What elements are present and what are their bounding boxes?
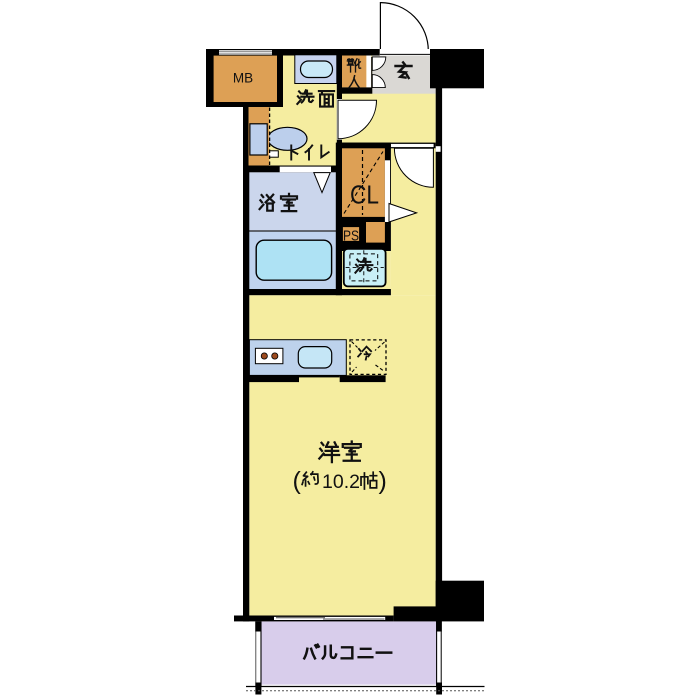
svg-text:10.2: 10.2 — [322, 471, 360, 493]
svg-text:MB: MB — [233, 71, 253, 86]
svg-text:PS: PS — [343, 227, 359, 244]
svg-text:): ) — [379, 467, 387, 495]
svg-text:(: ( — [293, 467, 302, 495]
svg-text:CL: CL — [350, 180, 379, 210]
